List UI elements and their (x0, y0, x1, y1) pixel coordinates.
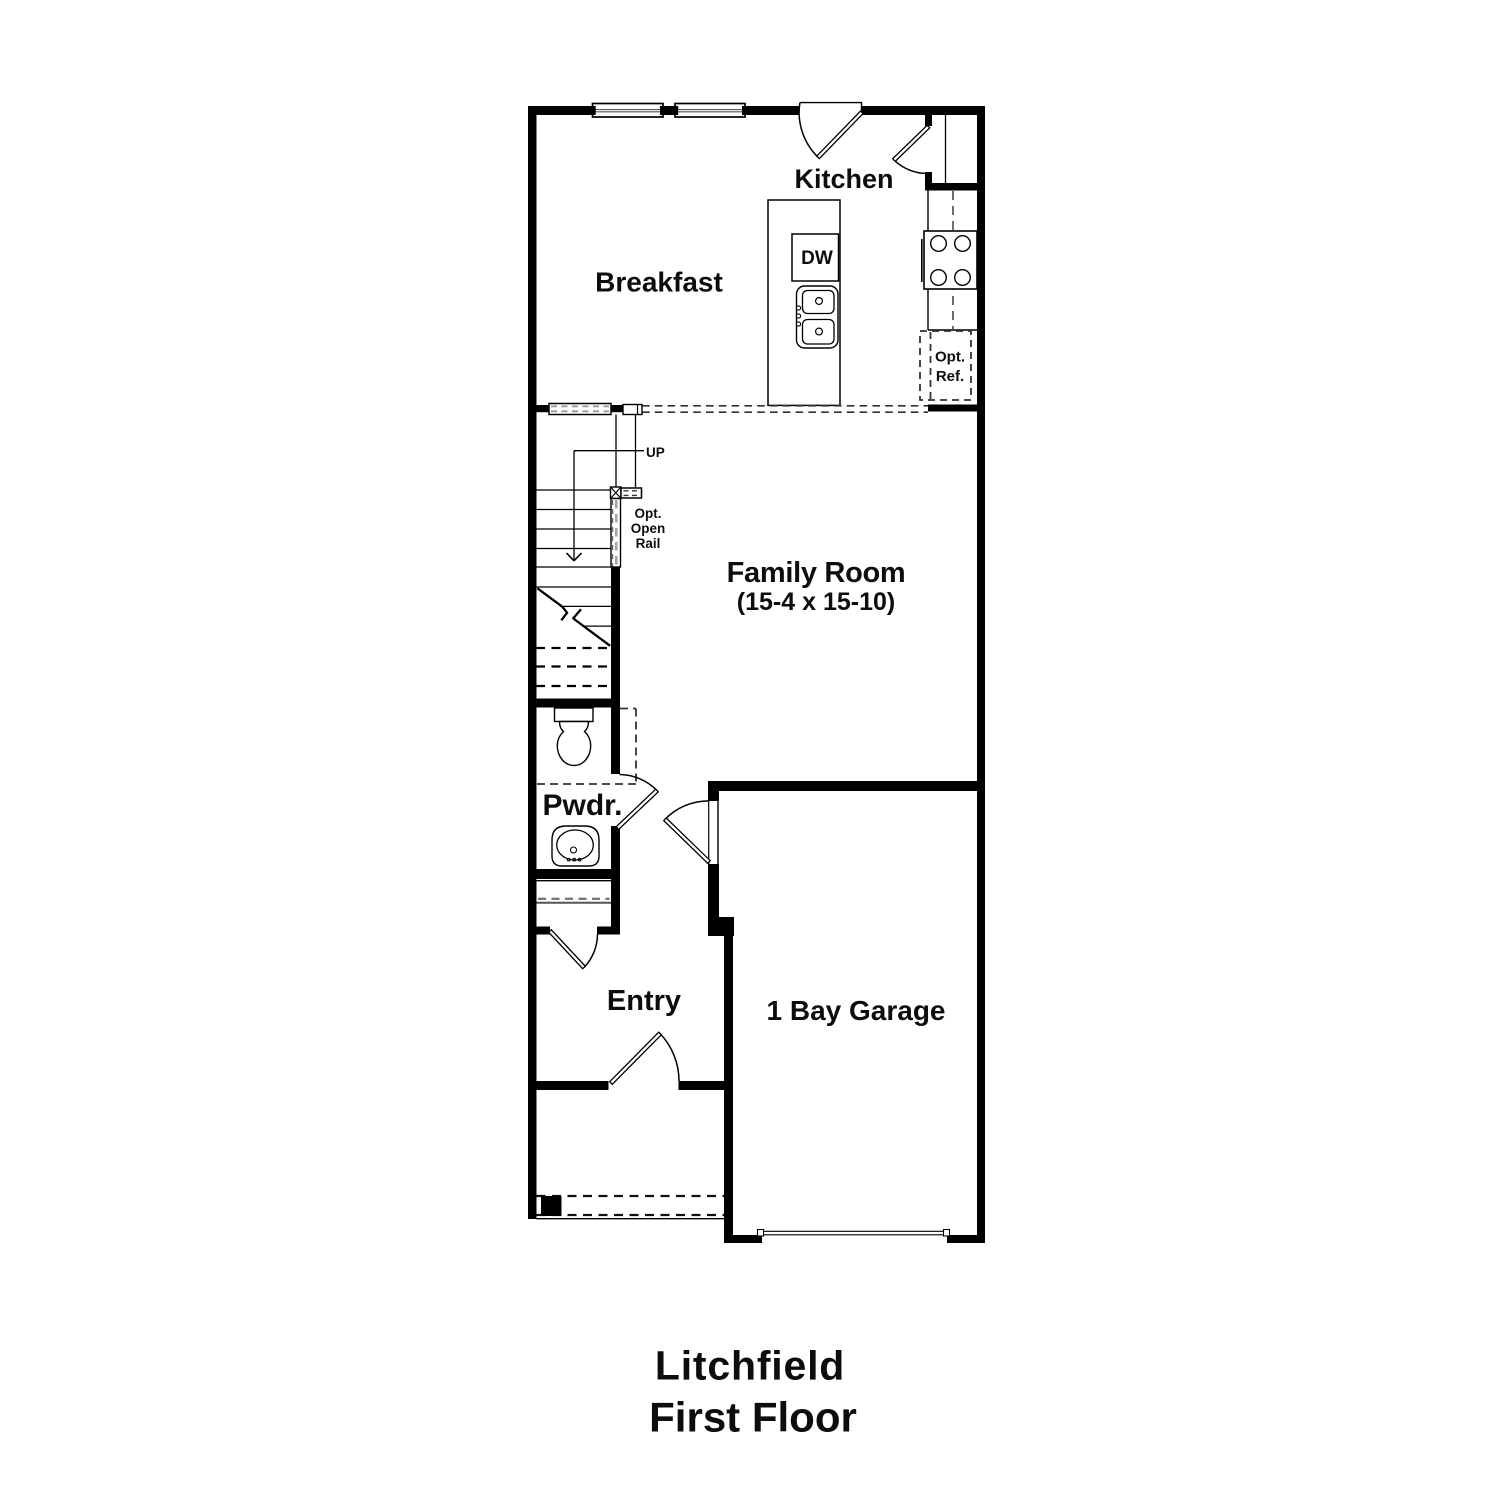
svg-text:Entry: Entry (607, 985, 681, 1017)
svg-text:Family Room: Family Room (727, 557, 906, 589)
svg-text:UP: UP (646, 445, 665, 460)
svg-text:1 Bay Garage: 1 Bay Garage (767, 995, 946, 1026)
svg-text:First Floor: First Floor (649, 1394, 857, 1441)
svg-text:Opt.: Opt. (935, 349, 965, 366)
svg-text:Breakfast: Breakfast (595, 267, 723, 298)
svg-text:DW: DW (801, 248, 833, 269)
svg-text:Litchfield: Litchfield (655, 1343, 845, 1389)
svg-text:Opt.: Opt. (635, 506, 662, 521)
svg-text:Pwdr.: Pwdr. (542, 789, 622, 822)
svg-text:Rail: Rail (636, 536, 661, 551)
svg-text:Kitchen: Kitchen (794, 164, 893, 194)
svg-text:Open: Open (631, 521, 666, 536)
svg-text:(15-4 x 15-10): (15-4 x 15-10) (737, 588, 895, 616)
svg-text:Ref.: Ref. (936, 368, 964, 385)
